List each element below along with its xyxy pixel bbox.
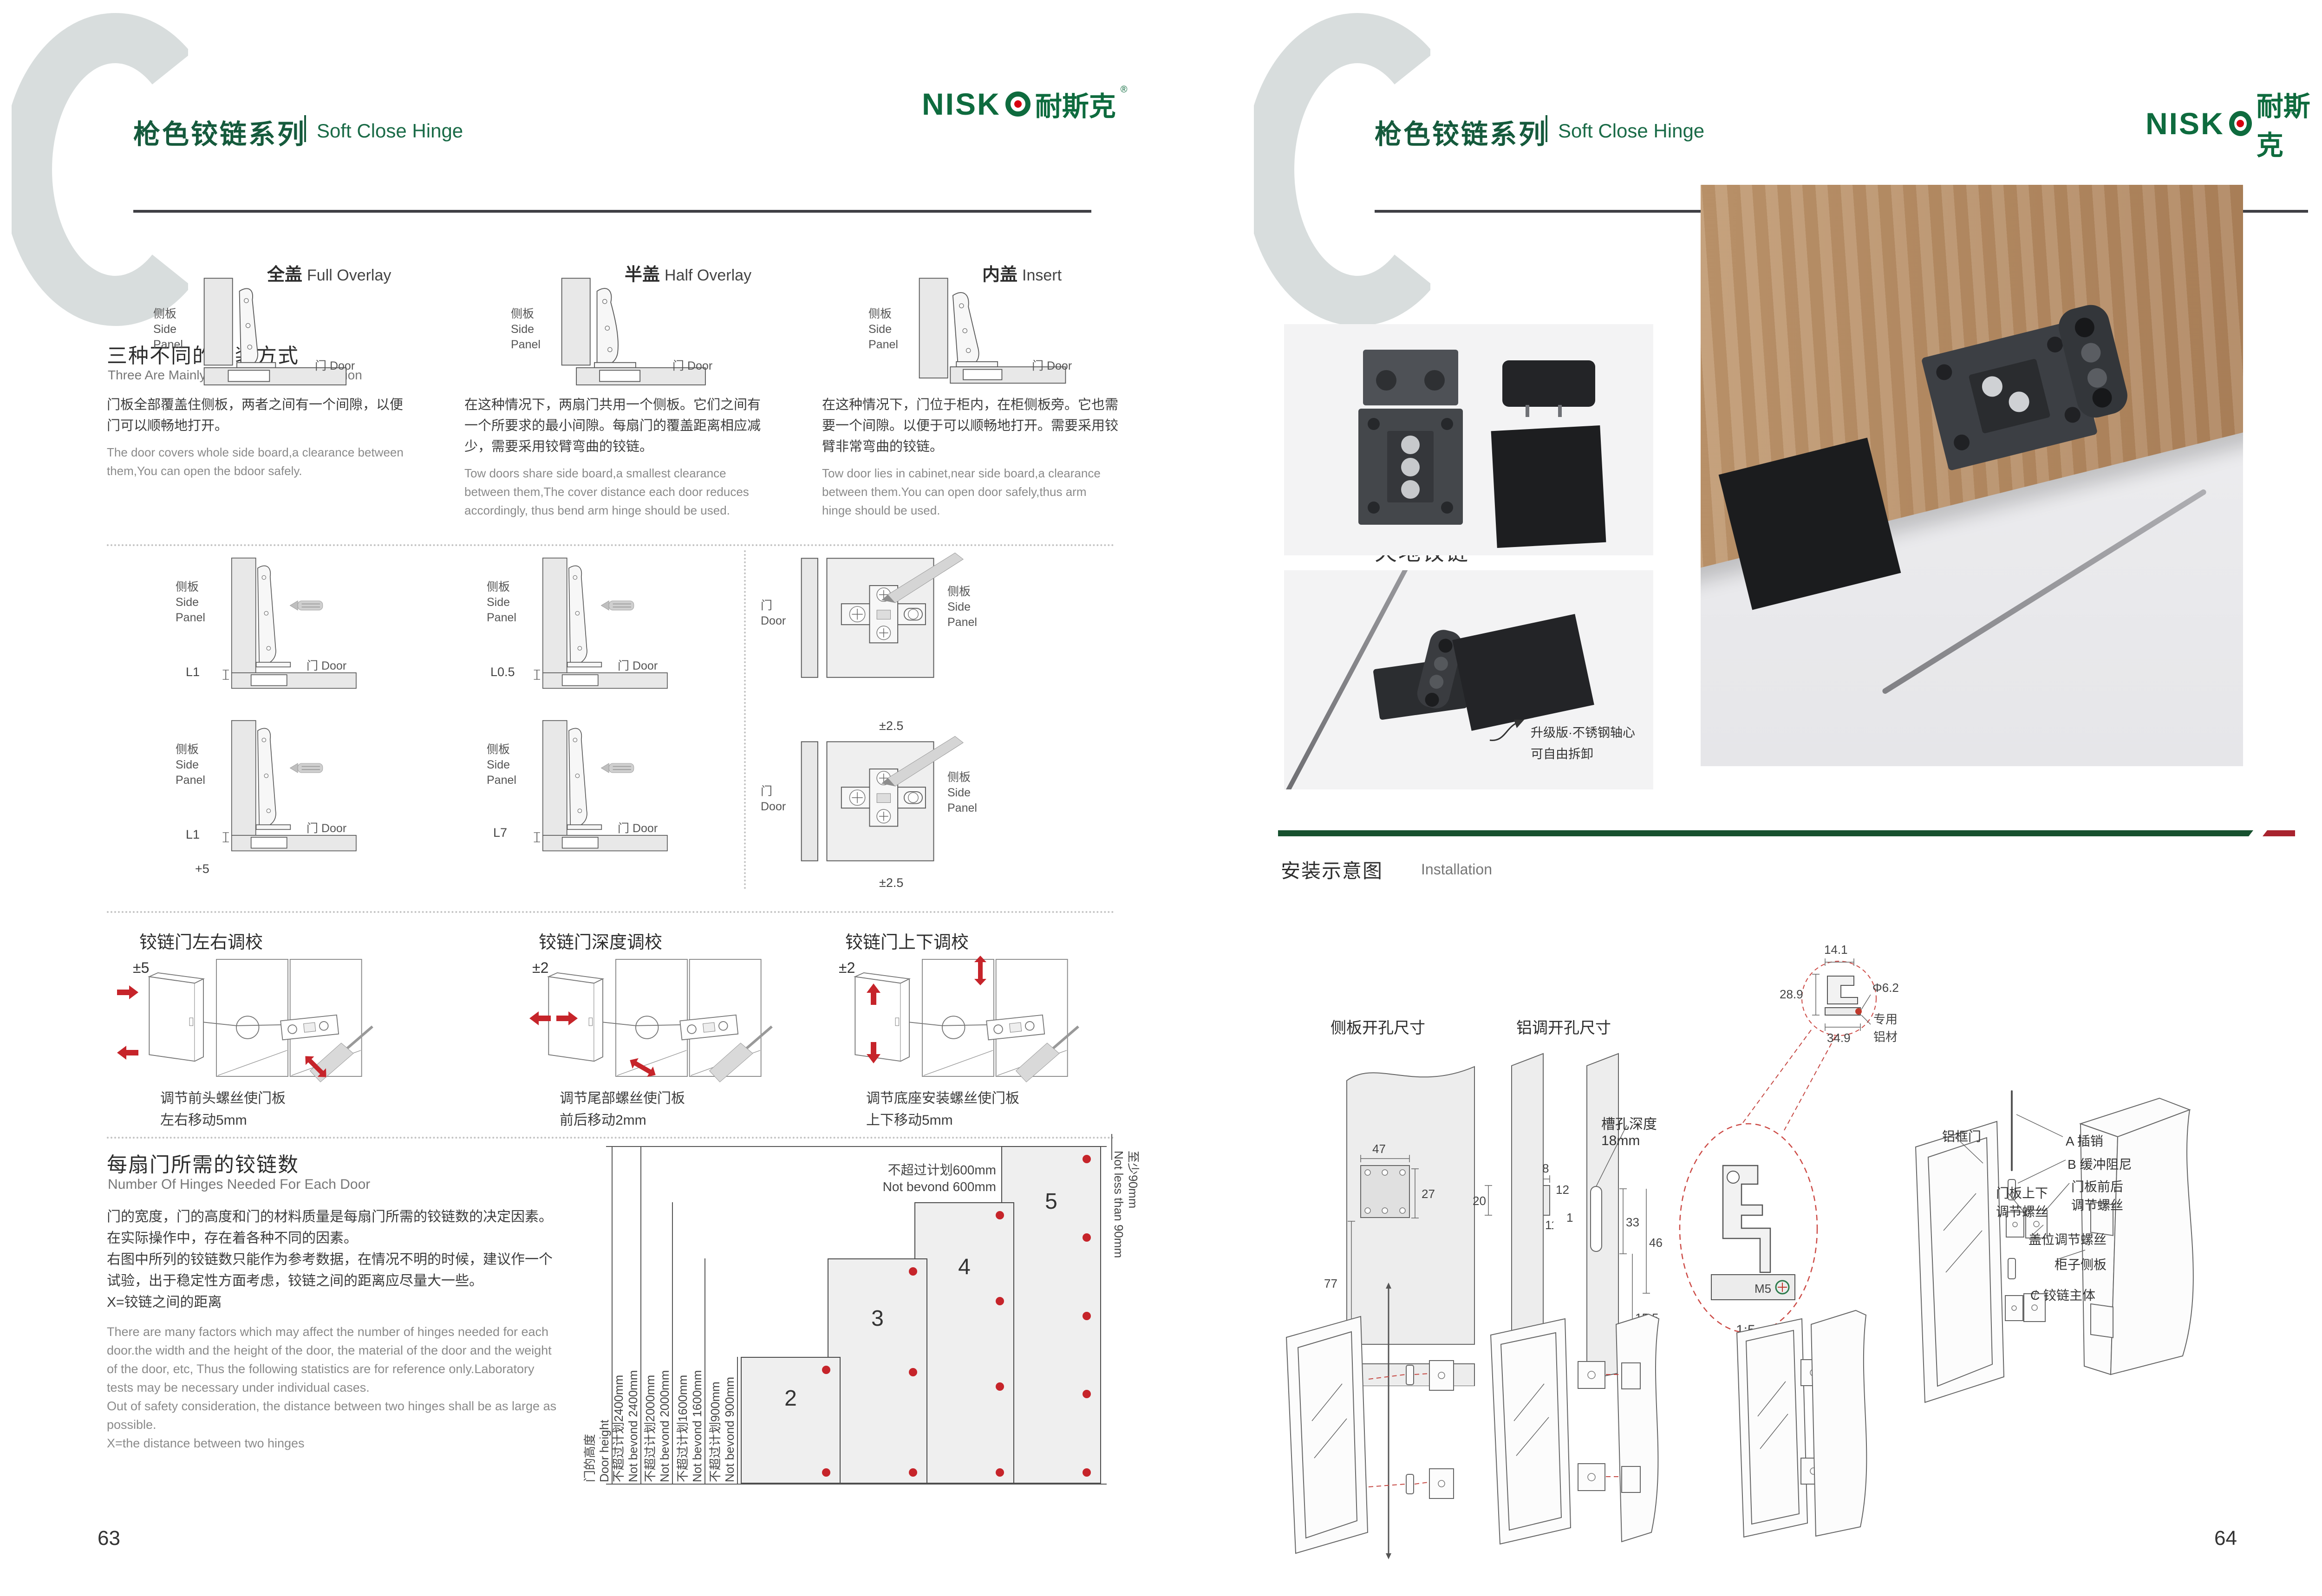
svg-text:28.9: 28.9 [1780, 987, 1803, 1001]
page-number-right: 64 [2214, 1527, 2237, 1550]
door-label: 门Door [761, 598, 786, 629]
product-photo-parts [1284, 324, 1653, 555]
series-title-en: Soft Close Hinge [1558, 120, 1704, 142]
adjust-diagram-lr [130, 953, 381, 1083]
door-label: 门 Door [618, 658, 658, 674]
door-label: 门 Door [307, 821, 346, 836]
label-a-pin: A 插销 [2066, 1131, 2103, 1150]
side-panel-label: 侧板SidePanel [487, 580, 516, 625]
hinge-count-chart: 5 4 3 2 门的高度Door height 不超过计划2400mmNot b… [601, 1138, 1126, 1509]
alu-hole-title: 铝调开孔尺寸 [1516, 1015, 1611, 1038]
slot-depth-label: 槽孔深度18mm [1601, 1113, 1657, 1149]
door-label: 门 Door [1032, 358, 1072, 374]
note-arrow-icon [1485, 711, 1527, 744]
gap-dim-l05: L0.5 [490, 665, 515, 679]
arrow-down-icon [867, 1042, 881, 1063]
installation-title-en: Installation [1421, 861, 1492, 878]
dim-2400 [640, 1146, 641, 1484]
profile-detail-drawing: 14.1 28.9 Φ6.2 34.9 专用 铝材 M5 1:5 [1672, 924, 1913, 1342]
label-alu-frame-door: 铝框门 [1942, 1127, 1981, 1145]
arrow-left-icon [529, 1011, 551, 1025]
way-desc-half-overlay: 在这种情况下，两扇门共用一个侧板。它们之间有一个所要求的最小间隙。每扇门的覆盖距… [464, 395, 771, 520]
deco-letter-c-right [1254, 9, 1430, 330]
arrow-double-vertical-icon [973, 956, 987, 985]
header-divider [304, 115, 306, 142]
product-photo-rod [1284, 570, 1653, 789]
red-separator-segment [2263, 830, 2295, 836]
svg-text:8: 8 [1542, 1161, 1549, 1175]
installation-title-cn: 安装示意图 [1281, 855, 1383, 884]
label-cabinet-side: 柜子侧板 [2055, 1255, 2107, 1273]
gap-dim-plus5: +5 [195, 862, 209, 876]
green-separator [1278, 830, 2253, 836]
side-panel-label: 侧板SidePanel [153, 306, 183, 352]
separator [107, 911, 1115, 913]
label-2000: 不超过计划2000mmNot bevond 2000mm [643, 1370, 672, 1482]
dim-900 [737, 1357, 738, 1484]
label-cover-screw: 盖位调节螺丝 [2028, 1230, 2107, 1248]
adjust-caption-depth: 调节尾部螺丝使门板前后移动2mm [560, 1088, 685, 1131]
arrow-left-icon [117, 1046, 138, 1060]
label-ud-screw: 门板上下调节螺丝 [1996, 1183, 2048, 1220]
exploded-sequence [1277, 1282, 1909, 1570]
adjust-diagram-ud [836, 953, 1087, 1083]
label-900: 不超过计划900mmNot bevond 900mm [708, 1377, 737, 1482]
brand-name-cn: 耐斯克 [1035, 85, 1116, 124]
hinges-desc-en: There are many factors which may affect … [107, 1322, 632, 1453]
adjust-caption-ud: 调节底座安装螺丝使门板上下移动5mm [866, 1088, 1019, 1131]
series-title-en: Soft Close Hinge [317, 120, 463, 142]
dim-1600 [704, 1258, 705, 1484]
product-note-line1: 升级版·不锈钢轴心 [1531, 723, 1635, 741]
adjust-range-lr: ±5 [133, 959, 149, 977]
brand-o-icon [1005, 91, 1031, 117]
svg-text:1: 1 [1566, 1211, 1573, 1225]
chart-bar-1: 3 [828, 1258, 927, 1484]
vertical-separator [744, 550, 746, 889]
svg-text:20: 20 [1473, 1194, 1486, 1208]
label-90: 至少90mmNot less than 90mm [1111, 1151, 1140, 1258]
hinges-desc-cn: 门的宽度，门的高度和门的材料质量是每扇门所需的铰链数的决定因素。在实际操作中，存… [107, 1206, 632, 1313]
svg-text:47: 47 [1372, 1142, 1386, 1156]
series-title-cn: 枪色铰链系列 [1375, 112, 1547, 151]
door-label: 门 Door [315, 358, 355, 374]
dim-2000 [672, 1202, 673, 1484]
way-desc-full-overlay: 门板全部覆盖住侧板，两者之间有一个间隙，以便门可以顺畅地打开。 The door… [107, 395, 413, 480]
label-1600: 不超过计划1600mmNot bevond 1600mm [676, 1370, 704, 1482]
side-panel-label: 侧板SidePanel [947, 584, 977, 630]
gap-dim-l1: L1 [186, 665, 200, 679]
chart-bar-3: 5 [1001, 1146, 1101, 1484]
hinges-title-en: Number Of Hinges Needed For Each Door [108, 1177, 370, 1192]
svg-text:11: 11 [1545, 1218, 1553, 1232]
svg-text:14.1: 14.1 [1824, 943, 1848, 957]
svg-text:铝材: 铝材 [1873, 1030, 1898, 1044]
hinges-title-cn: 每扇门所需的铰链数 [107, 1148, 299, 1178]
dim-90-tick1 [1111, 1134, 1112, 1146]
gap-dim-l1b: L1 [186, 827, 200, 842]
door-label: 门Door [761, 784, 786, 814]
way-desc-insert: 在这种情况下，门位于柜内，在柜侧板旁。它也需要一个间隙。以便于可以顺畅地打开。需… [822, 395, 1119, 520]
adjust-title-ud: 铰链门上下调校 [845, 928, 969, 953]
header-rule [133, 210, 1091, 213]
gap-dim-l7: L7 [493, 826, 507, 840]
svg-text:专用: 专用 [1873, 1012, 1898, 1026]
label-fb-screw: 门板前后调节螺丝 [2071, 1177, 2123, 1214]
adjust-caption-lr: 调节前头螺丝使门板左右移动5mm [160, 1088, 286, 1131]
svg-text:Φ6.2: Φ6.2 [1872, 981, 1899, 995]
product-photo-main [1701, 185, 2243, 766]
label-b-damper: B 缓冲阻尼 [2068, 1154, 2132, 1173]
side-hole-title: 侧板开孔尺寸 [1331, 1015, 1425, 1038]
page-number-left: 63 [98, 1527, 120, 1550]
series-title-cn: 枪色铰链系列 [133, 112, 306, 151]
svg-text:12: 12 [1556, 1183, 1569, 1197]
arrow-right-icon [556, 1011, 578, 1025]
chart-bar-0: 2 [741, 1357, 841, 1484]
door-label: 门 Door [618, 821, 658, 836]
svg-text:34.9: 34.9 [1827, 1031, 1851, 1045]
adjust-title-lr: 铰链门左右调校 [139, 928, 263, 953]
side-panel-label: 侧板SidePanel [176, 580, 205, 625]
side-panel-label: 侧板SidePanel [487, 742, 516, 788]
svg-text:46: 46 [1649, 1236, 1663, 1250]
brand-o-icon [2229, 111, 2252, 136]
dim-pm25-bottom: ±2.5 [879, 876, 903, 890]
registered-mark: ® [1121, 85, 1128, 95]
svg-text:27: 27 [1422, 1187, 1435, 1201]
label-c-hinge-body: C 铰链主体 [2030, 1285, 2095, 1304]
gap-diagram-l7 [478, 717, 673, 861]
arrow-up-icon [867, 984, 881, 1005]
brand-logo: NISK 耐斯克 ® [2146, 85, 2322, 163]
header-divider [1546, 115, 1547, 142]
door-label: 门 Door [307, 658, 346, 674]
adjust-range-ud: ±2 [839, 959, 855, 977]
brand-name: NISK [922, 86, 1001, 122]
chart-bar-2: 4 [914, 1202, 1014, 1484]
product-note-line2: 可自由拆卸 [1531, 744, 1593, 762]
side-panel-label: 侧板SidePanel [947, 770, 977, 816]
side-panel-label: 侧板SidePanel [868, 306, 898, 352]
label-2400: 不超过计划2400mmNot bevond 2400mm [612, 1370, 640, 1482]
adjust-title-depth: 铰链门深度调校 [539, 928, 662, 953]
arrow-right-icon [117, 985, 138, 999]
dim-pm25-top: ±2.5 [879, 719, 903, 733]
brand-logo: NISK 耐斯克 ® [922, 85, 1127, 124]
side-panel-label: 侧板SidePanel [176, 742, 205, 788]
side-panel-label: 侧板SidePanel [511, 306, 541, 352]
adjust-range-depth: ±2 [532, 959, 548, 977]
door-label: 门 Door [672, 358, 712, 374]
label-600: 不超过计划600mmNot bevond 600mm [824, 1162, 996, 1195]
separator [107, 544, 1115, 546]
svg-text:33: 33 [1626, 1215, 1639, 1229]
chart-baseline [606, 1484, 1107, 1485]
ylabel-door-height: 门的高度Door height [583, 1420, 612, 1482]
